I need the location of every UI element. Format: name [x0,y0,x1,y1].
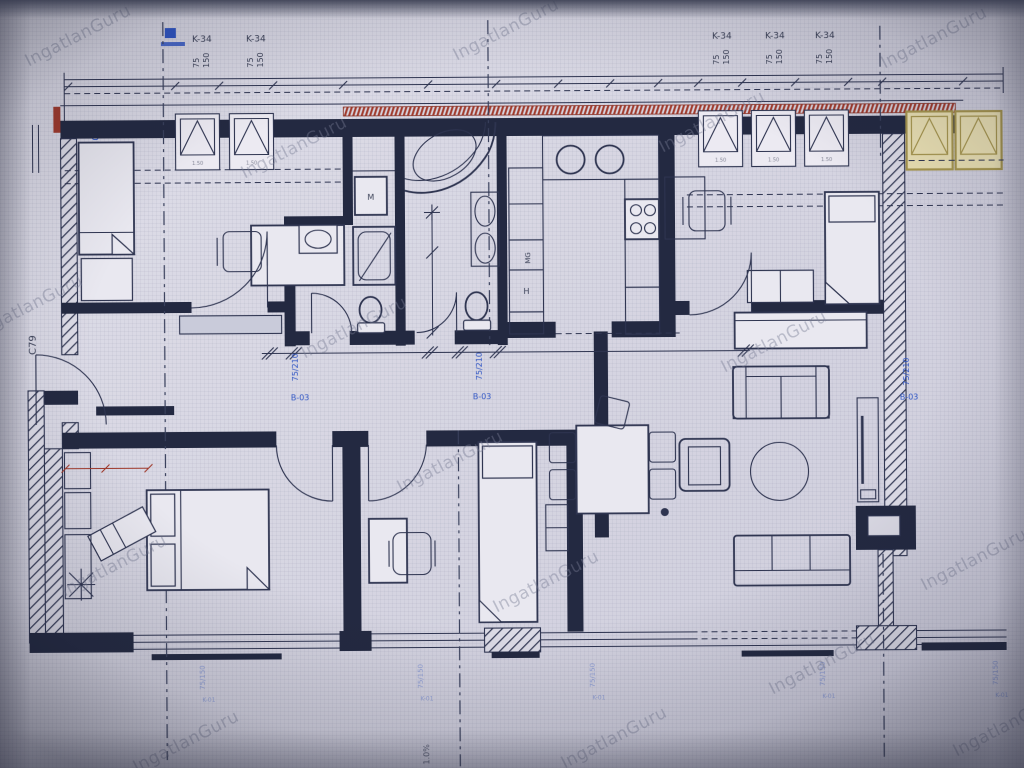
door-type-label: B-03 [900,393,919,402]
radiator [152,653,282,660]
right-wall [882,134,907,556]
wardrobe [65,535,91,599]
door-size-label: 75/210 [291,353,300,381]
double-washbasin [471,192,499,266]
round-rug [750,442,808,500]
lower-window-type: K-01 [995,692,1008,699]
slope-mark-label: 1.0% [422,744,431,765]
toilet [359,297,381,323]
nightstand [81,258,132,300]
door-size-label: 75/210 [902,357,911,385]
door-arc [368,445,426,501]
kitchen-counter [542,135,658,180]
section-mark-label: C79 [28,335,39,355]
blue-level-marker-icon [165,28,176,38]
office-chair [689,191,725,231]
window-height-label: 150 [202,53,211,68]
tv-panel [857,398,879,502]
window-width-label: 75 [765,54,774,64]
entrance-door-arc [36,354,106,424]
lower-window-type: K-01 [420,695,433,702]
window-width-label: 75 [246,57,255,67]
lower-window-size: 75/150 [417,664,425,689]
kitchen-left-wall [496,120,507,345]
fridge-label: H [523,287,529,296]
lower-window-size: 75/150 [992,660,1000,685]
bottom-wall [29,625,1006,661]
chair [649,432,675,462]
door-arc [276,445,332,501]
door-arc [416,292,456,332]
floor-dot [661,508,669,516]
radiator [492,652,540,658]
duct-box [868,516,900,536]
lower-floor-labels: 75/150 K-01 75/150 K-01 75/150 K-01 75/1… [199,660,1009,704]
sideboard [735,312,867,349]
kitchen: MG H [508,135,659,335]
bottom-rooms-divider [342,447,361,633]
corridor-bottom-wall [62,431,276,448]
dining-area [545,395,676,551]
red-insulation-strip [343,103,955,116]
dining-table [576,425,649,513]
window-height-label: 150 [722,49,731,64]
lower-window-size: 75/150 [199,665,207,690]
bench-diagonal [88,507,156,561]
window-sill-label: 1.50 [246,161,257,167]
radiator [922,642,1007,651]
sofa-three-seat [734,535,850,586]
toilet [465,292,487,320]
window-type-label: K-34 [765,31,785,41]
red-wall-mark [53,107,60,133]
bedroom-bottommiddle [368,442,537,623]
plan-tilt-wrapper: K-34 K-34 K-34 K-34 K-34 75 150 75 150 7… [0,0,1024,768]
sofa-two-seat [733,366,829,419]
lower-window-type: K-01 [202,697,215,704]
bath-divider-wall [394,121,405,346]
door-type-label: B-03 [291,393,310,402]
room1-bottom-wall [61,302,191,314]
window-height-label: 150 [825,49,834,64]
door-arc [689,253,751,315]
bedroom-right [665,176,880,315]
door-size-label: 75/210 [475,352,484,380]
chair [650,469,676,499]
window-width-label: 75 [192,58,201,68]
red-dimension-line [61,464,152,473]
desk [369,519,407,583]
wall-stub-lower [878,550,893,628]
washing-machine-label: M [367,193,374,202]
middle-dimension-line: 75/210 B-03 75/210 B-03 75/210 B-03 [262,344,919,406]
kitchen-sink [557,146,585,174]
window-width-label: 75 [712,55,721,65]
section-line-center-bottom [458,430,460,766]
window-type-label: K-34 [815,31,835,41]
window-sill-label: 1.50 [821,157,832,163]
kitchen-right-wall [658,119,675,337]
section-line-center-top [488,20,490,345]
wardrobe [64,453,90,489]
entrance [36,354,106,424]
living-room [660,312,880,586]
window-sill-label: 1.50 [768,157,779,163]
lower-window-size: 75/150 [819,661,827,686]
section-line-right-top [880,26,881,158]
window-type-label: K-34 [192,35,212,45]
floor-plan-drawing: K-34 K-34 K-34 K-34 K-34 75 150 75 150 7… [0,0,1024,768]
dishwasher-label: MG [524,252,532,264]
armchair [679,439,729,491]
bathroom-main [404,119,500,339]
floorplan-photo: K-34 K-34 K-34 K-34 K-34 75 150 75 150 7… [0,0,1024,768]
window-height-label: 150 [256,52,265,67]
radiator [742,650,834,657]
lower-window-size: 75/150 [589,663,597,688]
entrance-threshold [96,406,174,415]
lower-window-type: K-01 [592,694,605,701]
window-height-label: 150 [775,49,784,64]
window-sill-label: 1.50 [192,161,203,167]
left-wall-lower [28,391,46,643]
wardrobe [65,493,91,529]
blue-level-bar-icon [161,42,185,46]
door-arc [311,293,351,333]
pillow [482,446,532,478]
window-type-label: K-34 [712,32,732,42]
sideboard [180,315,282,334]
lower-window-type: K-01 [822,693,835,700]
window-type-label: K-34 [246,34,266,44]
stove [625,199,659,239]
window-sill-label: 1.50 [715,158,726,164]
kitchen-sink [596,145,624,173]
room1-right-wall [342,137,353,223]
single-bed [79,142,135,254]
pillow [151,544,175,586]
kitchen-bottom-wall [498,322,556,338]
left-wall-room [44,449,63,635]
door-type-label: B-03 [473,392,492,401]
pillow [829,196,875,222]
window-width-label: 75 [815,54,824,64]
